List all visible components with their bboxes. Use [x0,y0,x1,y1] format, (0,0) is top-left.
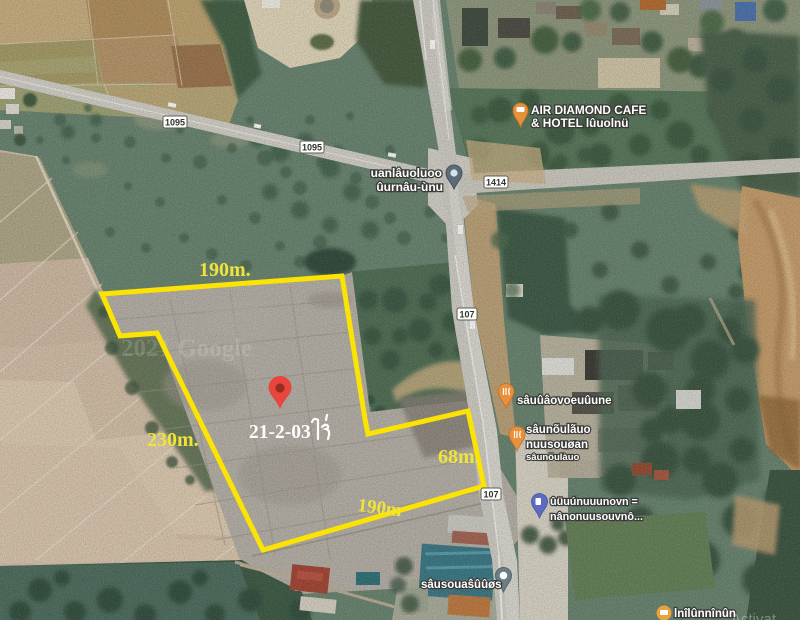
svg-text:sâunõulãuo: sâunõulãuo [526,424,591,436]
svg-text:1414: 1414 [486,178,506,188]
svg-text:230m.: 230m. [147,429,199,451]
svg-text:sâuûâovoeuûune: sâuûâovoeuûune [517,395,612,407]
svg-text:& HOTEL lûuolnü: & HOTEL lûuolnü [531,116,628,130]
svg-text:190m.: 190m. [199,259,251,281]
svg-text:1095: 1095 [302,143,322,153]
svg-text:uanlâuoluoo: uanlâuoluoo [371,166,442,180]
svg-text:68m.: 68m. [438,446,480,468]
svg-text:2021 Google: 2021 Google [121,335,252,362]
svg-text:1095: 1095 [165,118,185,128]
svg-text:Activat: Activat [731,611,777,620]
svg-text:AIR DIAMOND CAFE: AIR DIAMOND CAFE [531,103,646,117]
svg-text:nuusouøan: nuusouøan [526,439,588,451]
svg-text:sâusouaŝûûøs: sâusouaŝûûøs [421,579,502,591]
svg-text:nânonuusouvnô...: nânonuusouvnô... [550,511,643,523]
svg-text:lnîlûnnînûn: lnîlûnnînûn [674,608,736,620]
svg-text:107: 107 [483,490,498,500]
svg-text:sâunöulàuo: sâunöulàuo [526,452,580,463]
svg-text:ûurnâu-ùnu: ûurnâu-ùnu [376,180,443,194]
svg-text:107: 107 [459,310,474,320]
svg-text:ûüuúnuuunovn =: ûüuúnuuunovn = [550,496,638,508]
svg-text:21-2-03: 21-2-03 [249,422,311,443]
